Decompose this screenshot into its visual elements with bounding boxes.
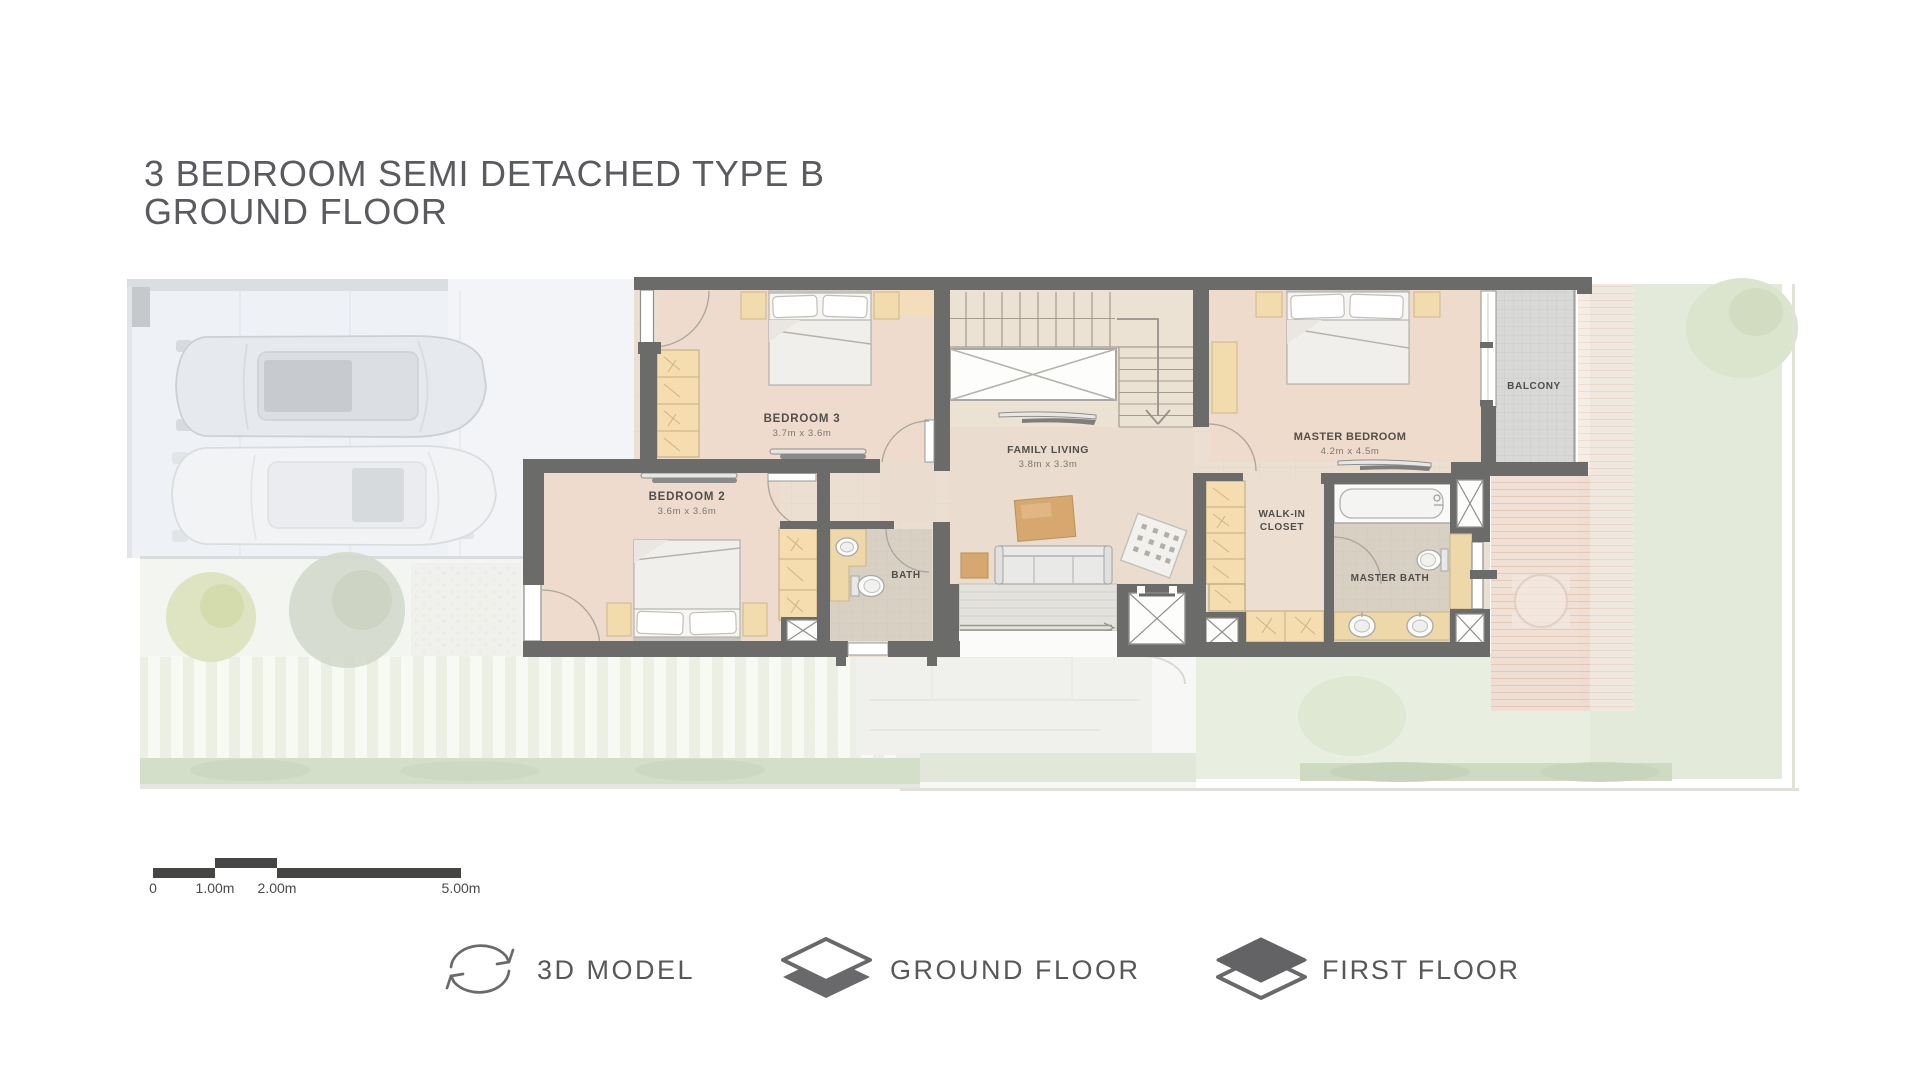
svg-text:WALK-IN: WALK-IN bbox=[1259, 509, 1306, 520]
svg-text:MASTER BEDROOM: MASTER BEDROOM bbox=[1294, 431, 1407, 443]
svg-text:3.6m x 3.6m: 3.6m x 3.6m bbox=[658, 506, 717, 517]
svg-text:2.00m: 2.00m bbox=[258, 880, 297, 896]
svg-text:FAMILY LIVING: FAMILY LIVING bbox=[1007, 444, 1089, 456]
svg-text:GROUND FLOOR: GROUND FLOOR bbox=[890, 955, 1141, 985]
svg-text:FIRST FLOOR: FIRST FLOOR bbox=[1322, 955, 1520, 985]
svg-text:0: 0 bbox=[149, 880, 157, 896]
svg-text:5.00m: 5.00m bbox=[442, 880, 481, 896]
svg-text:3.7m x 3.6m: 3.7m x 3.6m bbox=[773, 428, 832, 439]
svg-text:BATH: BATH bbox=[891, 570, 920, 581]
svg-text:1.00m: 1.00m bbox=[196, 880, 235, 896]
svg-text:3 BEDROOM SEMI DETACHED TYPE B: 3 BEDROOM SEMI DETACHED TYPE B bbox=[144, 153, 825, 194]
svg-text:4.2m x 4.5m: 4.2m x 4.5m bbox=[1321, 446, 1380, 457]
svg-text:BEDROOM 2: BEDROOM 2 bbox=[649, 491, 726, 503]
svg-text:BALCONY: BALCONY bbox=[1507, 381, 1561, 392]
svg-text:GROUND FLOOR: GROUND FLOOR bbox=[144, 191, 448, 232]
svg-text:BEDROOM 3: BEDROOM 3 bbox=[764, 413, 841, 425]
svg-text:3.8m x 3.3m: 3.8m x 3.3m bbox=[1019, 459, 1078, 470]
svg-text:MASTER BATH: MASTER BATH bbox=[1351, 573, 1430, 584]
svg-text:3D MODEL: 3D MODEL bbox=[537, 955, 695, 985]
svg-text:CLOSET: CLOSET bbox=[1260, 522, 1304, 533]
